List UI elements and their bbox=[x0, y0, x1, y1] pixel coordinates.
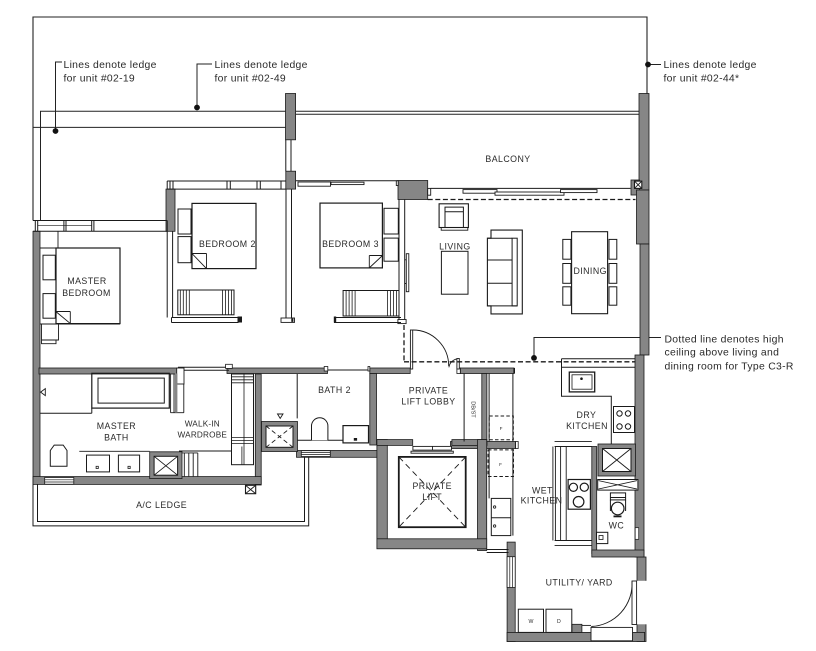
svg-text:WALK-IN: WALK-IN bbox=[185, 420, 220, 429]
svg-text:DRY: DRY bbox=[577, 410, 597, 420]
svg-text:Lines denote ledge: Lines denote ledge bbox=[664, 60, 757, 71]
svg-text:WARDROBE: WARDROBE bbox=[178, 431, 228, 440]
svg-text:WET: WET bbox=[532, 486, 553, 496]
svg-text:dining room for Type C3-R: dining room for Type C3-R bbox=[665, 361, 794, 372]
svg-text:DINING: DINING bbox=[573, 266, 607, 276]
svg-text:BATH 2: BATH 2 bbox=[318, 385, 351, 395]
svg-text:BEDROOM 2: BEDROOM 2 bbox=[199, 239, 256, 249]
svg-text:Lines denote ledge: Lines denote ledge bbox=[215, 60, 308, 71]
svg-text:UTILITY/ YARD: UTILITY/ YARD bbox=[546, 578, 613, 588]
svg-text:A/C LEDGE: A/C LEDGE bbox=[136, 500, 187, 510]
svg-text:Lines denote ledge: Lines denote ledge bbox=[64, 60, 157, 71]
svg-text:LIFT: LIFT bbox=[422, 492, 442, 502]
svg-text:LIVING: LIVING bbox=[439, 242, 471, 252]
svg-text:for unit #02-49: for unit #02-49 bbox=[215, 74, 287, 85]
svg-text:MASTER: MASTER bbox=[97, 421, 136, 431]
svg-text:F: F bbox=[499, 462, 502, 467]
svg-text:DB/ST: DB/ST bbox=[470, 401, 476, 418]
svg-text:KITCHEN: KITCHEN bbox=[521, 496, 563, 506]
svg-text:PRIVATE: PRIVATE bbox=[412, 481, 451, 491]
svg-text:KITCHEN: KITCHEN bbox=[566, 421, 608, 431]
svg-text:BATH: BATH bbox=[104, 433, 129, 443]
svg-text:LIFT LOBBY: LIFT LOBBY bbox=[401, 397, 455, 407]
svg-text:MASTER: MASTER bbox=[67, 276, 106, 286]
svg-text:for unit #02-44*: for unit #02-44* bbox=[664, 74, 740, 85]
svg-text:D: D bbox=[557, 619, 561, 625]
svg-text:F: F bbox=[500, 426, 503, 431]
svg-text:BEDROOM: BEDROOM bbox=[62, 288, 111, 298]
svg-text:ceiling above living and: ceiling above living and bbox=[665, 348, 780, 359]
svg-text:BALCONY: BALCONY bbox=[485, 154, 530, 164]
svg-text:Dotted line denotes high: Dotted line denotes high bbox=[665, 334, 784, 345]
svg-text:WC: WC bbox=[609, 521, 625, 531]
svg-text:for unit #02-19: for unit #02-19 bbox=[64, 74, 136, 85]
svg-text:W: W bbox=[528, 619, 533, 625]
svg-text:PRIVATE: PRIVATE bbox=[409, 386, 448, 396]
svg-text:BEDROOM 3: BEDROOM 3 bbox=[322, 239, 379, 249]
